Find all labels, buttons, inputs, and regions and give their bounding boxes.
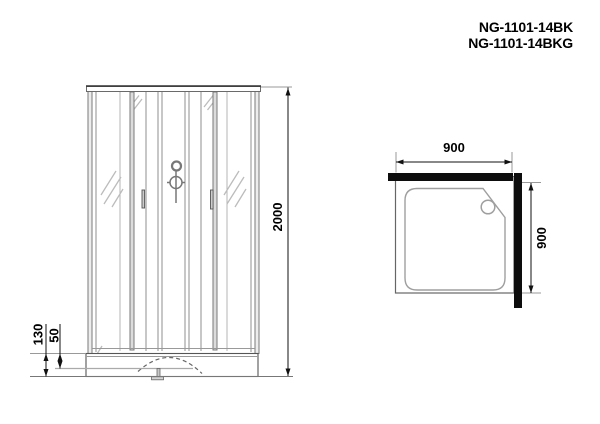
front-dimension-arrows [44, 88, 291, 377]
plan-width-dimension-label: 900 [414, 141, 494, 155]
door-handle-left [142, 190, 145, 208]
base-step-dimension-label: 50 [47, 321, 60, 351]
wall-right [514, 173, 522, 308]
roof-bar [86, 86, 261, 92]
glass-inner-lines [120, 92, 227, 351]
front-elevation-view [30, 86, 293, 380]
plan-depth-dimension-label: 900 [535, 217, 549, 259]
frame-profiles [88, 92, 259, 354]
technical-drawing-page: NG-1101-14BK NG-1101-14BKG 900 900 2000 … [0, 0, 600, 424]
cabin-height-dimension-label: 2000 [271, 193, 285, 241]
wall-top [388, 173, 513, 181]
glass-panel-lines [96, 92, 251, 352]
model-number-2: NG-1101-14BKG [468, 36, 573, 52]
door-handles [142, 190, 213, 209]
glass-reflection-marks [92, 96, 246, 363]
mixer-icon [167, 162, 185, 204]
front-dimension-lines [46, 88, 288, 377]
drain-circle [481, 200, 495, 214]
drawing-canvas [0, 0, 600, 424]
plan-view [388, 152, 541, 308]
shower-tray-front [55, 354, 258, 380]
base-height-dimension-label: 130 [32, 317, 45, 353]
model-number-1: NG-1101-14BK [468, 20, 573, 36]
model-title-block: NG-1101-14BK NG-1101-14BKG [468, 20, 573, 51]
door-handle-right [211, 190, 214, 209]
